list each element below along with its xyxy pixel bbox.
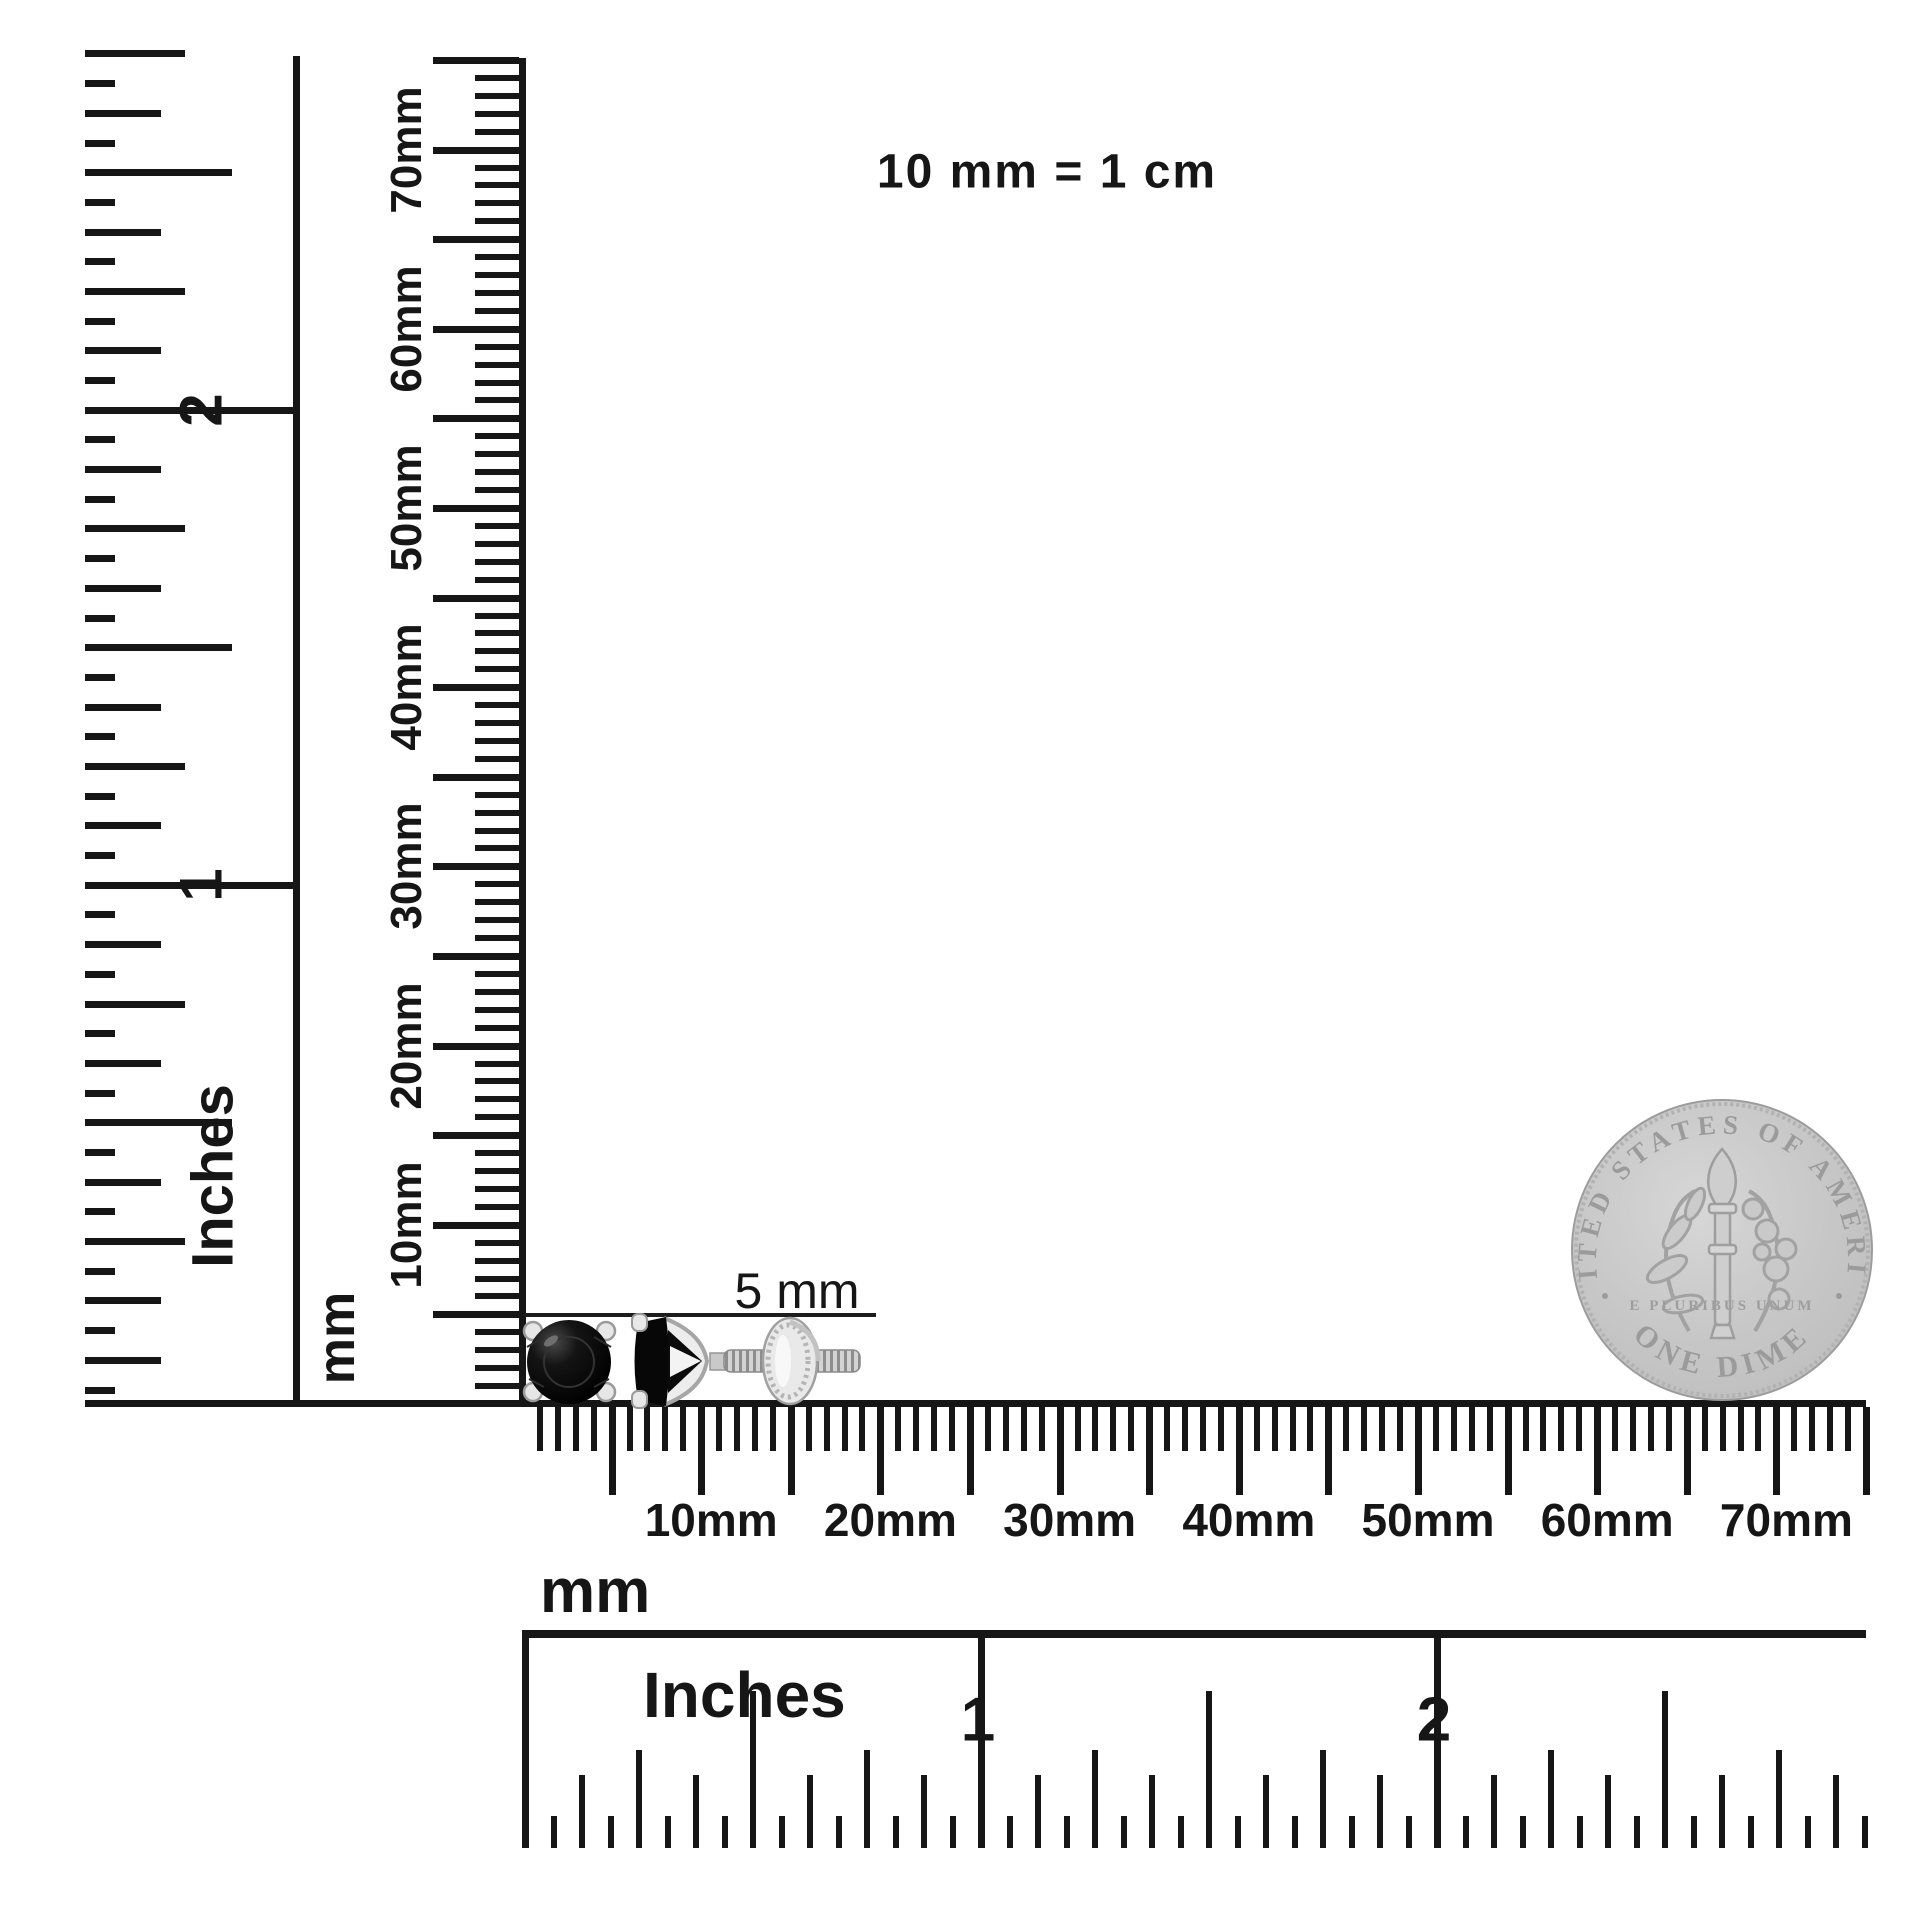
inch-tick [1805,1816,1811,1848]
inch-tick [1662,1691,1668,1848]
mm-tick-label: 20mm [824,1493,957,1547]
black-stone-front [527,1320,611,1404]
mm-tick [475,433,519,439]
mm-tick [475,75,519,81]
mm-tick [1272,1407,1278,1451]
mm-tick [475,523,519,529]
mm-tick [475,630,519,636]
mm-tick [1039,1407,1045,1451]
mm-tick [877,1407,884,1495]
mm-tick [433,1222,519,1229]
inch-tick [1719,1775,1725,1848]
inch-tick [85,852,115,859]
mm-tick [967,1407,974,1495]
stud-side-view [632,1314,860,1408]
mm-tick [1110,1407,1116,1451]
mm-tick [1684,1407,1691,1495]
mm-tick [475,218,519,224]
vertical-mm-ruler-spine [519,58,526,1404]
mm-tick [475,362,519,368]
mm-tick-label: 10mm [382,1161,432,1288]
mm-tick [475,1293,519,1299]
inch-tick [85,1357,161,1364]
mm-tick [433,415,519,422]
inch-tick [1263,1775,1269,1848]
mm-tick [475,917,519,923]
mm-tick [475,1114,519,1120]
mm-tick [475,1096,519,1102]
vertical-mm-unit-label: mm [307,1292,367,1384]
inch-tick [85,318,115,325]
mm-tick [475,738,519,744]
inch-tick [85,733,115,740]
mm-tick [1343,1407,1349,1451]
mm-tick [433,684,519,691]
inch-tick [85,1179,161,1186]
inch-tick [864,1750,870,1848]
inch-tick [85,347,161,354]
inch-tick [85,704,161,711]
inch-tick [1605,1775,1611,1848]
mm-tick [475,702,519,708]
mm-tick [1307,1407,1313,1451]
inch-tick [85,911,115,918]
mm-tick [475,380,519,386]
inch-tick [85,1090,115,1097]
inch-tick [85,971,115,978]
inch-tick [85,525,185,532]
inch-tick [1577,1816,1583,1848]
mm-tick [1164,1407,1170,1451]
mm-tick [1218,1407,1224,1451]
inch-tick [85,941,161,948]
inch-tick [722,1816,728,1848]
mm-tick [475,541,519,547]
mm-tick [475,1061,519,1067]
inch-tick [85,1268,115,1275]
mm-tick [475,344,519,350]
mm-tick-label: 70mm [1720,1493,1853,1547]
inch-tick [1121,1816,1127,1848]
inch-tick [85,80,115,87]
mm-tick-label: 60mm [382,265,432,392]
mm-tick [433,1311,519,1318]
mm-tick [1738,1407,1744,1451]
mm-tick [433,505,519,512]
mm-tick [475,935,519,941]
mm-tick [1487,1407,1493,1451]
inch-tick [85,169,232,176]
inch-tick [85,1060,161,1067]
mm-tick [475,648,519,654]
ruler-baseline [85,1400,1866,1407]
inch-tick [1149,1775,1155,1848]
inch-tick [85,1327,115,1334]
mm-tick-label: 20mm [382,982,432,1109]
mm-tick [475,881,519,887]
mm-tick [1827,1407,1833,1451]
mm-tick [1182,1407,1188,1451]
mm-tick [475,254,519,260]
inch-tick [85,1030,115,1037]
mm-tick [475,1276,519,1282]
mm-tick [1254,1407,1260,1451]
mm-tick [433,326,519,333]
mm-tick [475,559,519,565]
mm-tick [1702,1407,1708,1451]
mm-tick [475,828,519,834]
mm-tick [1773,1407,1780,1495]
mm-tick [433,953,519,960]
inch-numeral-label: 1 [961,1685,995,1756]
mm-tick [475,290,519,296]
mm-tick [895,1407,901,1451]
inch-tick [1491,1775,1497,1848]
mm-tick-label: 30mm [382,803,432,930]
mm-tick [1648,1407,1654,1451]
mm-tick [475,1186,519,1192]
mm-tick [1075,1407,1081,1451]
inch-tick [85,110,161,117]
mm-tick [475,397,519,403]
mm-tick [788,1407,795,1495]
inch-tick [1776,1750,1782,1848]
mm-tick [1523,1407,1529,1451]
inch-tick [693,1775,699,1848]
coin-motto-text: E PLURIBUS UNUM [1629,1298,1814,1314]
mm-tick [1451,1407,1457,1451]
vertical-inches-unit-label: Inches [180,1084,247,1268]
mm-tick [475,129,519,135]
mm-tick [1863,1407,1870,1495]
mm-tick-label: 70mm [382,86,432,213]
inch-tick [85,822,161,829]
mm-tick [433,595,519,602]
inch-tick [85,644,232,651]
mm-tick [475,200,519,206]
mm-tick [433,1132,519,1139]
mm-tick [1469,1407,1475,1451]
inch-numeral-label: 2 [1417,1685,1451,1756]
mm-tick [1200,1407,1206,1451]
mm-tick-label: 40mm [382,624,432,751]
inch-tick [1463,1816,1469,1848]
inch-tick [85,1001,185,1008]
mm-tick [1361,1407,1367,1451]
mm-tick [475,1025,519,1031]
inch-tick [1178,1816,1184,1848]
mm-tick [475,469,519,475]
mm-tick [475,613,519,619]
mm-tick [913,1407,919,1451]
inch-tick [1007,1816,1013,1848]
mm-tick [475,182,519,188]
inch-tick [85,763,185,770]
inch-tick [921,1775,927,1848]
horizontal-inch-ruler-spine [522,1630,1866,1638]
mm-tick [433,863,519,870]
inch-tick [85,377,115,384]
inch-tick [1691,1816,1697,1848]
inch-tick [1235,1816,1241,1848]
mm-tick [433,147,519,154]
mm-tick-label: 40mm [1182,1493,1315,1547]
inch-tick [1520,1816,1526,1848]
horizontal-inches-unit-label: Inches [643,1658,846,1732]
inch-tick [1833,1775,1839,1848]
inch-tick [608,1816,614,1848]
mm-tick [433,57,519,64]
scale-note: 10 mm = 1 cm [877,145,1217,200]
inch-tick [1406,1816,1412,1848]
mm-tick [1290,1407,1296,1451]
mm-tick [475,451,519,457]
inch-tick [1064,1816,1070,1848]
mm-tick-label: 50mm [1362,1493,1495,1547]
inch-tick [85,199,115,206]
mm-tick [1505,1407,1512,1495]
inch-tick [1862,1816,1868,1848]
inch-tick [1634,1816,1640,1848]
mm-tick [1003,1407,1009,1451]
mm-tick [433,236,519,243]
inch-numeral-label: 1 [167,869,236,902]
inch-tick [1548,1750,1554,1848]
mm-tick [1576,1407,1582,1451]
inch-tick [551,1816,557,1848]
inch-numeral-label: 2 [167,394,236,427]
mm-tick [1594,1407,1601,1495]
inch-tick [85,1149,115,1156]
mm-tick [1146,1407,1153,1495]
inch-tick [85,674,115,681]
inch-tick [950,1816,956,1848]
inch-tick [85,288,185,295]
inch-tick [1035,1775,1041,1848]
mm-tick [1612,1407,1618,1451]
mm-tick [1325,1407,1332,1495]
horizontal-mm-unit-label: mm [540,1556,650,1627]
inch-tick [1092,1750,1098,1848]
mm-tick [475,487,519,493]
inch-tick [85,555,115,562]
mm-tick [1433,1407,1439,1451]
inch-tick [836,1816,842,1848]
mm-tick [1236,1407,1243,1495]
inch-tick [85,436,115,443]
mm-tick [1379,1407,1385,1451]
inch-tick [807,1775,813,1848]
mm-tick [475,93,519,99]
inch-tick [665,1816,671,1848]
mm-tick [1558,1407,1564,1451]
mm-tick [475,899,519,905]
mm-tick [1128,1407,1134,1451]
inch-tick [85,793,115,800]
inch-tick [1292,1816,1298,1848]
mm-tick [475,1007,519,1013]
mm-tick [475,111,519,117]
inch-tick [85,229,161,236]
earrings-photo [510,1306,885,1414]
mm-tick [475,810,519,816]
mm-tick [1057,1407,1064,1495]
inch-tick [779,1816,785,1848]
inch-tick [636,1750,642,1848]
inch-tick [85,1297,161,1304]
inch-tick [1377,1775,1383,1848]
mm-tick [475,845,519,851]
mm-tick [475,756,519,762]
mm-tick [475,577,519,583]
inch-tick [1748,1816,1754,1848]
mm-tick [475,720,519,726]
inch-tick [85,50,185,57]
inch-tick [1206,1691,1212,1848]
mm-tick [1666,1407,1672,1451]
mm-tick [475,1258,519,1264]
inch-tick [85,258,115,265]
inch-tick [579,1775,585,1848]
inch-tick [85,585,161,592]
mm-tick [433,1043,519,1050]
mm-tick [1021,1407,1027,1451]
mm-tick [1397,1407,1403,1451]
mm-tick [475,971,519,977]
mm-tick-label: 30mm [1003,1493,1136,1547]
inch-tick [85,1208,115,1215]
inch-tick [1349,1816,1355,1848]
inch-tick [522,1637,529,1848]
mm-tick [475,1078,519,1084]
inch-tick [893,1816,899,1848]
mm-tick [475,1204,519,1210]
mm-tick [931,1407,937,1451]
inch-tick [85,140,115,147]
dime-coin: UNITED STATES OF AMERICA ONE DIME E PLUR… [1571,1099,1873,1401]
inch-tick [85,615,115,622]
size-chart-image: 10 mm = 1 cm 12 Inches 10mm20mm30mm40mm5… [0,0,1920,1920]
mm-tick [1630,1407,1636,1451]
inch-tick [85,1238,185,1245]
mm-tick [475,165,519,171]
mm-tick [475,272,519,278]
mm-tick [475,989,519,995]
mm-tick [1791,1407,1797,1451]
inch-tick [85,496,115,503]
mm-tick-label: 60mm [1541,1493,1674,1547]
mm-tick [475,666,519,672]
mm-tick [698,1407,705,1495]
inch-tick [85,1387,115,1394]
mm-tick [1720,1407,1726,1451]
mm-tick [475,1168,519,1174]
mm-tick [1845,1407,1851,1451]
mm-tick [433,774,519,781]
mm-tick-label: 10mm [645,1493,778,1547]
mm-tick [1092,1407,1098,1451]
stud-front-view [524,1320,615,1404]
mm-tick [475,792,519,798]
mm-tick [475,308,519,314]
mm-tick [1415,1407,1422,1495]
mm-tick [609,1407,616,1495]
vertical-inch-ruler-spine [293,56,300,1404]
inch-tick [1320,1750,1326,1848]
mm-tick [475,1240,519,1246]
mm-tick [475,1150,519,1156]
mm-tick [1540,1407,1546,1451]
mm-tick-label: 50mm [382,444,432,571]
mm-tick [949,1407,955,1451]
inch-tick [85,466,161,473]
mm-tick [1809,1407,1815,1451]
mm-tick [1755,1407,1761,1451]
mm-tick [985,1407,991,1451]
